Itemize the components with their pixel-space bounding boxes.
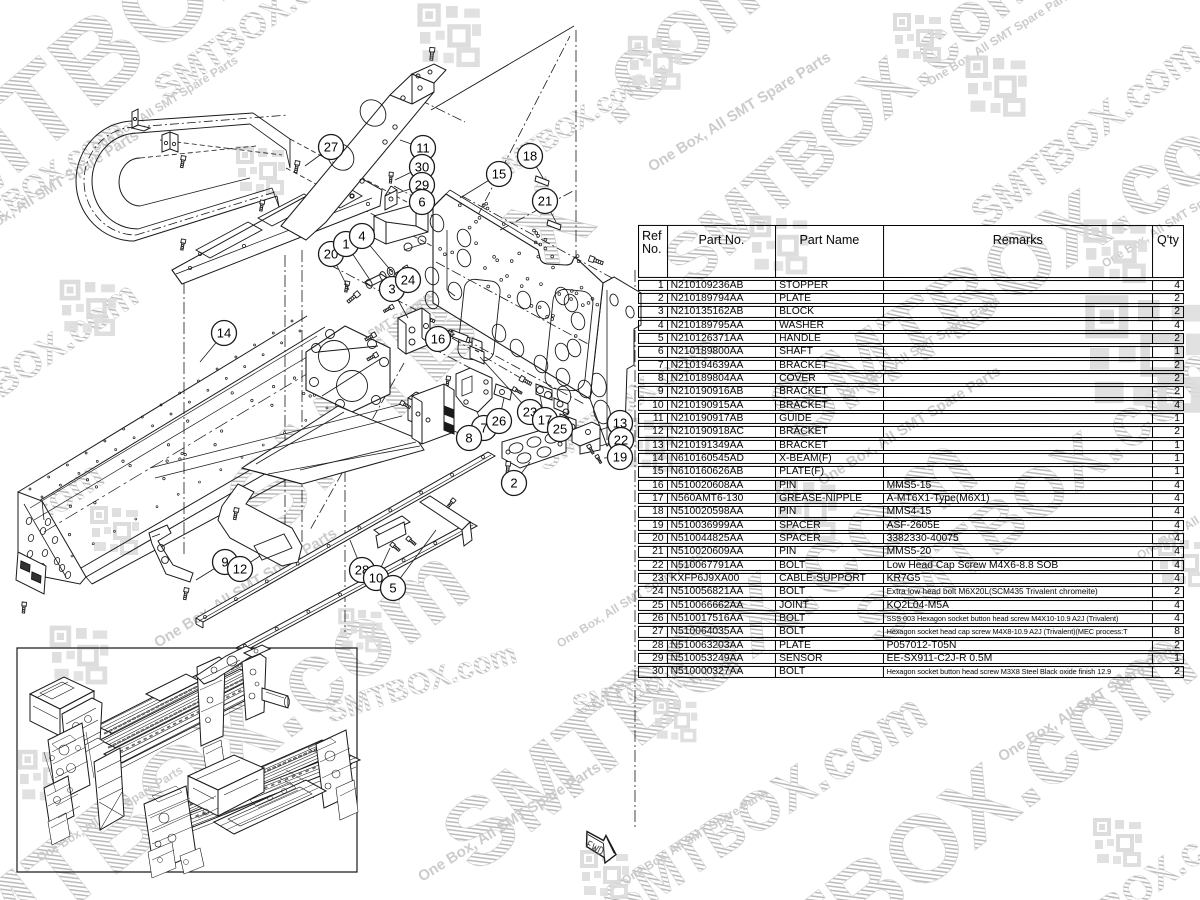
svg-text:4: 4 — [358, 229, 365, 244]
svg-text:18: 18 — [523, 149, 537, 164]
svg-text:19: 19 — [613, 450, 627, 465]
svg-text:27: 27 — [324, 140, 338, 155]
svg-text:12: 12 — [233, 562, 247, 577]
svg-text:15: 15 — [492, 167, 506, 182]
svg-text:26: 26 — [492, 414, 506, 429]
svg-text:1: 1 — [342, 237, 349, 252]
svg-text:5: 5 — [389, 581, 396, 596]
svg-text:14: 14 — [217, 326, 231, 341]
svg-text:2: 2 — [510, 476, 517, 491]
svg-text:3: 3 — [388, 282, 395, 297]
svg-text:16: 16 — [431, 332, 445, 347]
svg-text:8: 8 — [465, 431, 472, 446]
svg-text:SMTBOX.com: SMTBOX.com — [0, 274, 146, 453]
svg-text:25: 25 — [553, 422, 567, 437]
svg-text:24: 24 — [401, 273, 415, 288]
svg-text:6: 6 — [418, 195, 425, 210]
svg-text:21: 21 — [538, 194, 552, 209]
svg-text:11: 11 — [416, 141, 430, 156]
